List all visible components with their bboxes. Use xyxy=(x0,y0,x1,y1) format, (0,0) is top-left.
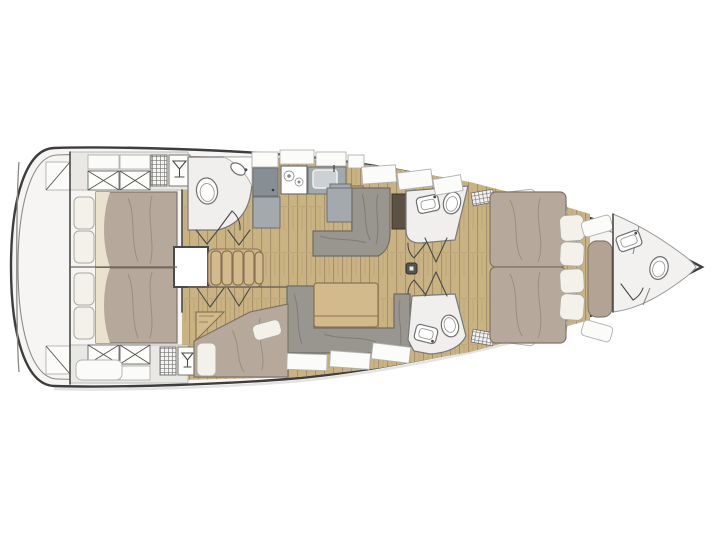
locker xyxy=(88,155,119,169)
pillow xyxy=(74,197,94,229)
side-panel xyxy=(397,169,433,190)
overhead-locker xyxy=(316,152,346,166)
bow-head xyxy=(613,214,696,312)
hanging-locker-grid-icon xyxy=(160,347,176,375)
overhead-locker xyxy=(252,152,278,167)
mast-step-icon xyxy=(406,263,417,274)
pillow xyxy=(559,214,585,242)
step xyxy=(255,252,263,284)
pillow xyxy=(559,268,584,293)
locker xyxy=(120,366,150,380)
martini-glass-locker-icon xyxy=(169,155,190,186)
pillow xyxy=(74,307,94,339)
owner-cabin xyxy=(490,189,614,346)
hanging-locker-grid-icon xyxy=(151,155,167,186)
island-bed-port-half xyxy=(490,267,566,343)
fridge-handle xyxy=(272,189,275,192)
side-panel xyxy=(361,165,396,184)
side-panel xyxy=(329,351,370,370)
galley-counter xyxy=(253,197,280,228)
stove-icon xyxy=(281,166,307,194)
step xyxy=(233,251,243,285)
yacht-floorplan xyxy=(0,0,720,539)
overhead-locker xyxy=(280,150,314,164)
side-panel xyxy=(287,353,328,370)
overhead-locker xyxy=(348,155,364,168)
engine-box xyxy=(174,247,208,287)
companionway xyxy=(174,247,263,287)
locker-x-icon xyxy=(120,171,150,190)
fridge xyxy=(253,168,278,196)
pillow xyxy=(559,293,585,321)
island-bed-starboard-half xyxy=(490,192,566,267)
salon-cabinet xyxy=(327,188,352,222)
stern-lockers-top xyxy=(88,155,190,190)
pillow xyxy=(74,273,94,305)
pillow xyxy=(74,231,94,263)
locker-x-icon xyxy=(88,171,119,190)
side-panel xyxy=(580,319,613,343)
pillow xyxy=(197,343,216,376)
step xyxy=(211,251,221,285)
folding-table xyxy=(314,283,378,327)
locker-x-icon xyxy=(120,345,150,364)
yacht-floorplan-canvas xyxy=(0,0,720,539)
cockpit-locker xyxy=(76,360,122,380)
step xyxy=(244,251,254,285)
locker xyxy=(120,155,150,169)
step xyxy=(222,251,232,285)
pillow xyxy=(559,241,584,266)
seat-bench xyxy=(588,241,612,317)
